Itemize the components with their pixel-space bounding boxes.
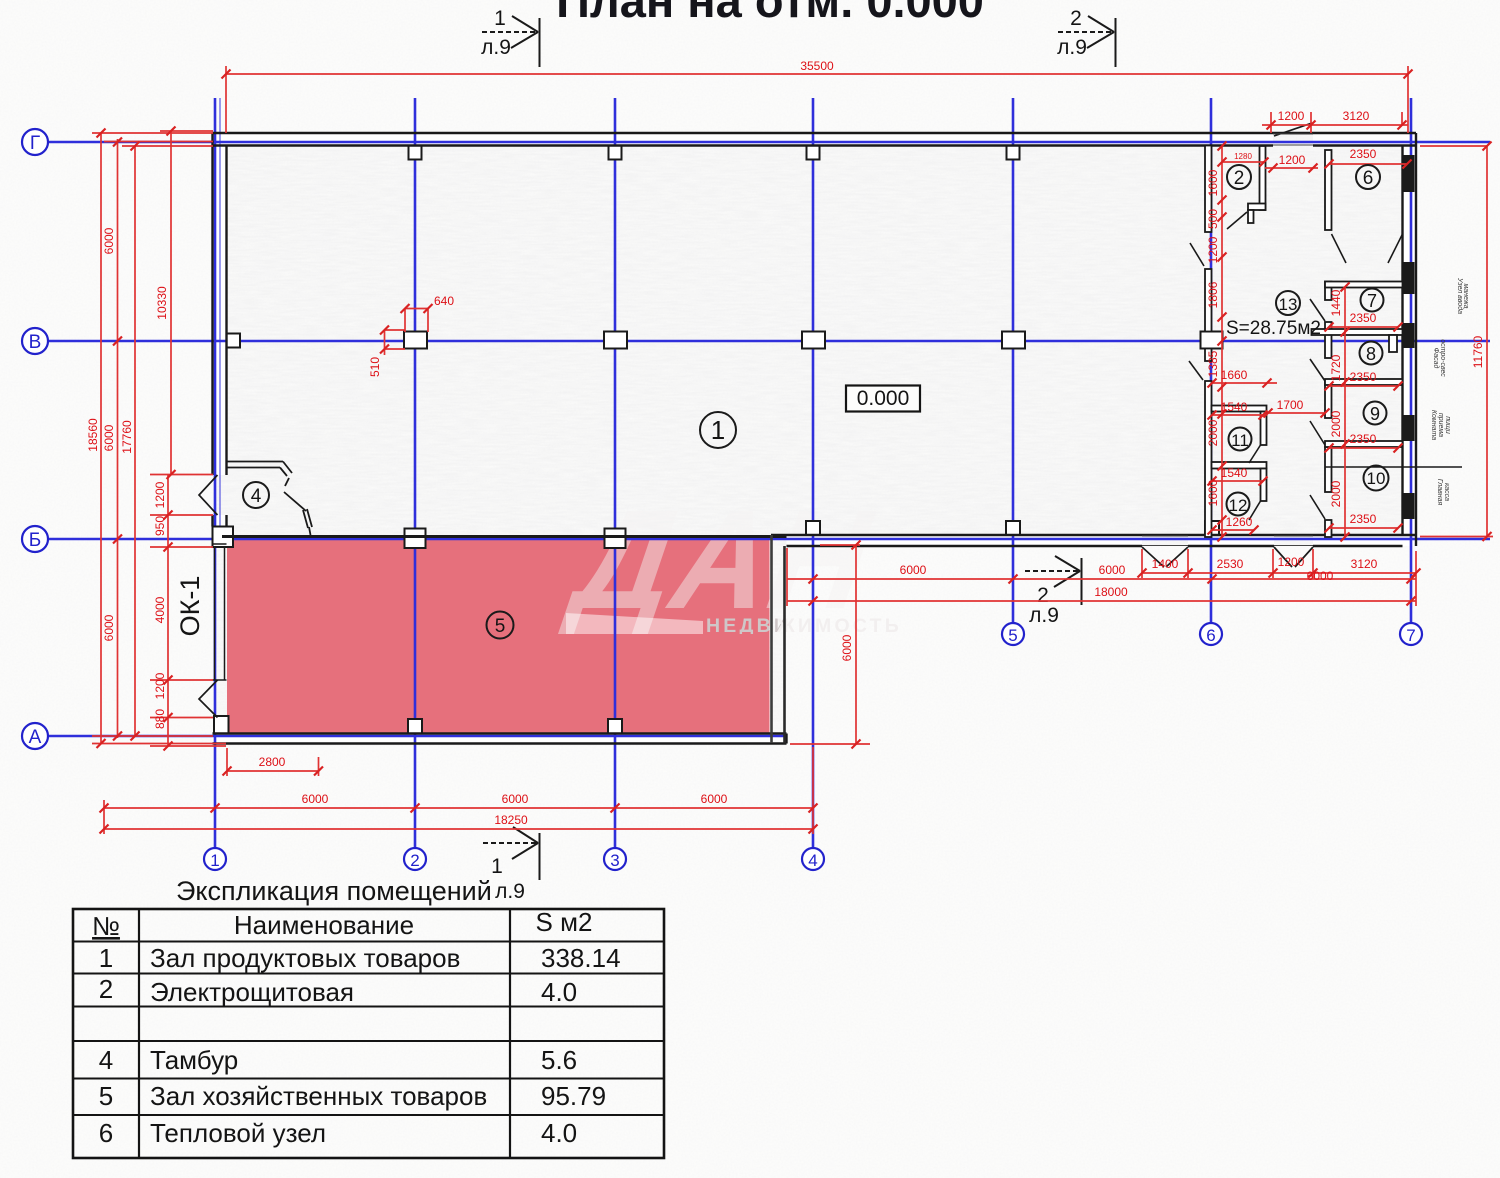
svg-text:6000: 6000 <box>102 227 116 254</box>
svg-text:18560: 18560 <box>86 418 100 452</box>
svg-text:1200: 1200 <box>153 672 167 699</box>
svg-text:1200: 1200 <box>1278 109 1305 123</box>
svg-text:510: 510 <box>368 357 382 377</box>
svg-text:А: А <box>29 727 42 748</box>
svg-text:6: 6 <box>1363 168 1374 189</box>
svg-text:Главная: Главная <box>1436 479 1443 506</box>
svg-text:10: 10 <box>1367 469 1386 488</box>
svg-text:2350: 2350 <box>1350 147 1377 161</box>
svg-text:2800: 2800 <box>259 755 286 769</box>
svg-text:6000: 6000 <box>1307 569 1334 583</box>
svg-text:1600: 1600 <box>1206 169 1220 196</box>
svg-text:5: 5 <box>99 1081 113 1111</box>
svg-text:6000: 6000 <box>102 424 116 451</box>
svg-text:4: 4 <box>808 851 817 870</box>
svg-text:11: 11 <box>1231 431 1249 450</box>
svg-text:2: 2 <box>410 851 419 870</box>
svg-text:1: 1 <box>711 415 725 445</box>
svg-text:950: 950 <box>153 516 167 536</box>
svg-text:ЖИМОСТЬ: ЖИМОСТЬ <box>776 615 902 637</box>
svg-text:880: 880 <box>153 709 167 729</box>
svg-text:остро-свес: остро-свес <box>1439 339 1446 377</box>
svg-text:1260: 1260 <box>1226 515 1253 529</box>
svg-text:Экспликация помещений: Экспликация помещений <box>176 876 492 906</box>
svg-text:л.9: л.9 <box>1057 36 1087 59</box>
svg-text:4: 4 <box>99 1045 113 1075</box>
svg-text:17760: 17760 <box>120 420 134 454</box>
svg-text:S=28.75м2: S=28.75м2 <box>1226 318 1321 339</box>
svg-text:18250: 18250 <box>494 813 528 827</box>
svg-text:2000: 2000 <box>1329 410 1343 437</box>
svg-text:Тепловой узел: Тепловой узел <box>150 1118 326 1148</box>
svg-text:2000: 2000 <box>1206 419 1220 446</box>
svg-text:13: 13 <box>1279 295 1298 314</box>
svg-text:3: 3 <box>610 851 619 870</box>
svg-text:Комната: Комната <box>1430 410 1437 440</box>
svg-text:Наименование: Наименование <box>234 910 414 940</box>
svg-text:1200: 1200 <box>1278 555 1305 569</box>
svg-text:35500: 35500 <box>800 59 834 73</box>
svg-text:6000: 6000 <box>900 563 927 577</box>
svg-text:1385: 1385 <box>1206 350 1220 377</box>
svg-text:л.9: л.9 <box>1029 604 1059 627</box>
svg-text:2: 2 <box>1070 7 1082 30</box>
svg-text:Б: Б <box>29 530 41 551</box>
svg-text:1200: 1200 <box>153 481 167 508</box>
svg-text:1540: 1540 <box>1221 400 1248 414</box>
svg-text:3120: 3120 <box>1343 109 1370 123</box>
svg-text:18000: 18000 <box>1094 585 1128 599</box>
svg-text:1: 1 <box>491 855 503 878</box>
svg-text:5: 5 <box>1008 626 1017 645</box>
svg-text:4.0: 4.0 <box>541 1118 577 1148</box>
svg-text:План на отм. 0.000: План на отм. 0.000 <box>556 0 984 27</box>
svg-text:5.6: 5.6 <box>541 1045 577 1075</box>
svg-text:4.0: 4.0 <box>541 977 577 1007</box>
svg-text:Зал продуктовых товаров: Зал продуктовых товаров <box>150 943 460 973</box>
svg-text:Фасад: Фасад <box>1432 348 1440 369</box>
svg-text:6: 6 <box>1206 626 1215 645</box>
svg-text:6000: 6000 <box>840 634 854 661</box>
svg-text:6000: 6000 <box>302 792 329 806</box>
svg-text:8: 8 <box>1366 344 1376 364</box>
svg-text:Электрощитовая: Электрощитовая <box>150 977 354 1007</box>
svg-text:1660: 1660 <box>1221 368 1248 382</box>
svg-text:10330: 10330 <box>155 286 169 320</box>
svg-text:ОК-1: ОК-1 <box>175 576 205 637</box>
svg-text:7: 7 <box>1367 291 1377 311</box>
svg-text:9: 9 <box>1370 404 1380 424</box>
svg-text:500: 500 <box>1206 209 1220 229</box>
svg-text:манежа: манежа <box>1462 283 1469 308</box>
svg-text:пищи: пищи <box>1444 416 1451 434</box>
svg-text:5: 5 <box>495 616 506 637</box>
svg-text:338.14: 338.14 <box>541 943 621 973</box>
svg-text:2530: 2530 <box>1217 557 1244 571</box>
svg-text:12: 12 <box>1229 496 1248 515</box>
svg-text:4000: 4000 <box>153 596 167 623</box>
svg-text:1: 1 <box>494 7 506 30</box>
svg-text:№: № <box>92 911 120 941</box>
svg-text:В: В <box>29 332 42 353</box>
svg-text:2: 2 <box>99 974 113 1004</box>
svg-text:1: 1 <box>99 943 113 973</box>
svg-text:2350: 2350 <box>1350 512 1377 526</box>
svg-text:1720: 1720 <box>1329 354 1343 381</box>
svg-text:6: 6 <box>99 1118 113 1148</box>
svg-text:Зал хозяйственных товаров: Зал хозяйственных товаров <box>150 1081 487 1111</box>
svg-text:2350: 2350 <box>1350 432 1377 446</box>
svg-text:касса: касса <box>1443 483 1450 501</box>
svg-text:S м2: S м2 <box>536 907 593 937</box>
svg-text:1280: 1280 <box>1234 152 1252 161</box>
svg-text:л.9: л.9 <box>481 36 511 59</box>
svg-text:6000: 6000 <box>701 792 728 806</box>
svg-text:11760: 11760 <box>1471 335 1485 368</box>
svg-text:2: 2 <box>1234 168 1245 189</box>
svg-text:1200: 1200 <box>1279 153 1306 167</box>
svg-text:1200: 1200 <box>1206 236 1220 263</box>
svg-text:1540: 1540 <box>1221 466 1248 480</box>
svg-text:2350: 2350 <box>1350 370 1377 384</box>
svg-text:640: 640 <box>434 294 454 308</box>
svg-text:2000: 2000 <box>1329 480 1343 507</box>
svg-text:6000: 6000 <box>1099 563 1126 577</box>
svg-text:6000: 6000 <box>102 614 116 641</box>
svg-text:1400: 1400 <box>1152 557 1179 571</box>
svg-text:л.9: л.9 <box>495 880 525 903</box>
svg-text:7: 7 <box>1406 626 1415 645</box>
svg-text:3120: 3120 <box>1351 557 1378 571</box>
svg-text:4: 4 <box>251 486 262 507</box>
svg-text:Тамбур: Тамбур <box>150 1045 238 1075</box>
svg-text:95.79: 95.79 <box>541 1081 606 1111</box>
svg-text:6000: 6000 <box>502 792 529 806</box>
svg-text:2350: 2350 <box>1350 311 1377 325</box>
svg-text:1440: 1440 <box>1329 289 1343 316</box>
svg-text:Г: Г <box>30 133 40 154</box>
svg-text:1600: 1600 <box>1206 479 1220 506</box>
svg-text:1806: 1806 <box>1206 281 1220 308</box>
svg-text:0.000: 0.000 <box>857 387 910 410</box>
svg-text:приема: приема <box>1437 413 1444 437</box>
svg-text:1700: 1700 <box>1277 398 1304 412</box>
svg-text:1: 1 <box>210 851 219 870</box>
